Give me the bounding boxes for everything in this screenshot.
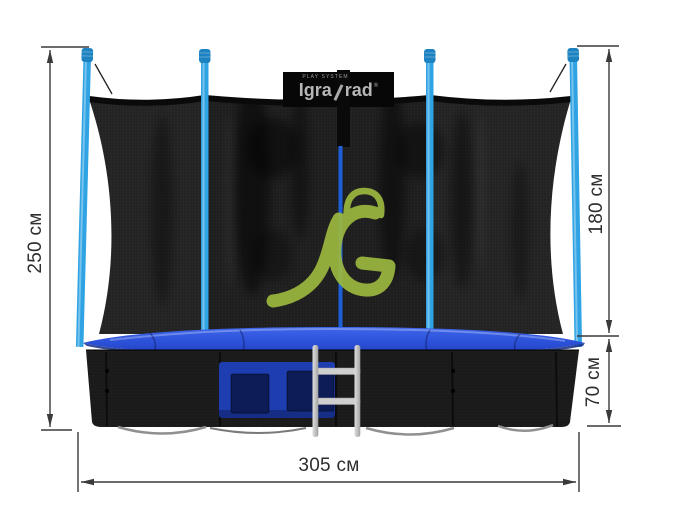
pole-left-outer <box>74 48 93 347</box>
ladder-rail <box>313 345 319 437</box>
dim-label-frame-height: 70 см <box>583 357 605 407</box>
ladder-rung <box>313 368 360 375</box>
pole-cap-icon <box>81 48 93 62</box>
pole-cap-icon <box>567 48 579 62</box>
pole-cap-icon <box>424 49 436 63</box>
brand-name-right: rad <box>345 81 373 99</box>
trampoline-product-diagram: 250 см 180 см 70 см 305 см PLAY SYSTEM I… <box>0 0 674 528</box>
shoe-pocket <box>287 371 334 411</box>
dim-label-width: 305 см <box>298 455 359 477</box>
brand-patch: PLAY SYSTEM Igra rad ® <box>283 72 394 107</box>
dim-label-overall-height: 250 см <box>25 212 47 273</box>
pole-right-outer <box>567 48 584 347</box>
dim-label-net-height: 180 см <box>586 173 608 234</box>
ladder-rung <box>313 398 360 405</box>
brand-patch-name: Igra rad ® <box>299 81 378 104</box>
brand-slash-icon <box>332 83 345 102</box>
pole-cap-icon <box>199 49 211 63</box>
safety-net <box>89 75 571 336</box>
shoe-pocket <box>231 374 269 413</box>
brand-name-left: Igra <box>299 81 332 99</box>
registered-trademark: ® <box>374 77 378 95</box>
ladder-rail <box>355 345 361 437</box>
